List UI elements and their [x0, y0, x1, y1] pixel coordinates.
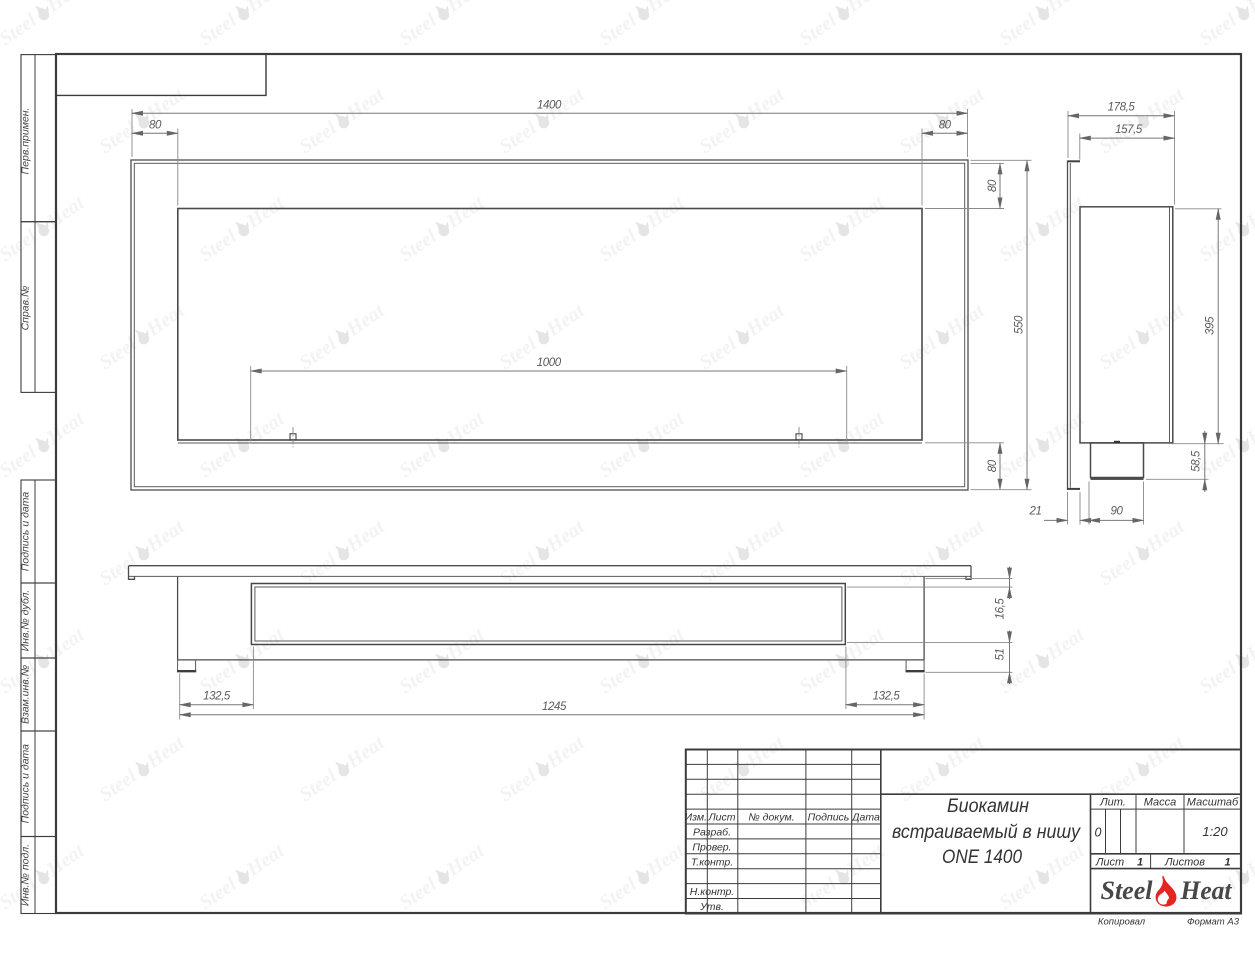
- svg-text:1: 1: [1137, 856, 1143, 868]
- svg-text:157,5: 157,5: [1115, 124, 1143, 136]
- svg-text:1:20: 1:20: [1202, 824, 1228, 839]
- svg-text:1245: 1245: [542, 701, 567, 713]
- svg-text:Heat: Heat: [1180, 876, 1233, 905]
- svg-text:Т.контр.: Т.контр.: [691, 856, 733, 868]
- svg-text:16,5: 16,5: [995, 598, 1007, 620]
- svg-text:Провер.: Провер.: [692, 841, 731, 853]
- svg-text:Инв.№ дубл.: Инв.№ дубл.: [20, 590, 32, 652]
- svg-text:80: 80: [939, 120, 952, 132]
- svg-text:21: 21: [1029, 506, 1042, 518]
- svg-text:Биокамин: Биокамин: [947, 796, 1030, 817]
- svg-text:178,5: 178,5: [1108, 102, 1136, 114]
- svg-text:Изм.: Изм.: [685, 812, 707, 824]
- svg-text:Копировал: Копировал: [1098, 917, 1146, 928]
- svg-text:0: 0: [1095, 826, 1102, 840]
- svg-text:80: 80: [987, 459, 999, 472]
- svg-text:Подпись и дата: Подпись и дата: [20, 744, 32, 824]
- svg-text:Инв.№ подл.: Инв.№ подл.: [20, 844, 32, 906]
- svg-text:1400: 1400: [537, 100, 562, 112]
- svg-text:ONE 1400: ONE 1400: [942, 847, 1022, 868]
- svg-text:51: 51: [995, 649, 1007, 661]
- svg-text:встраиваемый в нишу: встраиваемый в нишу: [892, 822, 1081, 843]
- svg-text:Утв.: Утв.: [699, 901, 724, 913]
- svg-text:№ докум.: № докум.: [748, 812, 794, 824]
- svg-text:Лит.: Лит.: [1099, 797, 1126, 809]
- svg-text:Подпись и дата: Подпись и дата: [20, 492, 32, 572]
- svg-text:Подпись: Подпись: [808, 812, 850, 824]
- svg-text:Лист: Лист: [707, 812, 735, 824]
- svg-text:132,5: 132,5: [873, 691, 901, 703]
- svg-text:Steel: Steel: [1101, 876, 1154, 905]
- svg-text:Лист: Лист: [1095, 856, 1124, 868]
- svg-text:Масштаб: Масштаб: [1187, 797, 1239, 809]
- svg-text:395: 395: [1205, 316, 1217, 335]
- svg-text:80: 80: [149, 120, 162, 132]
- svg-text:Формат А3: Формат А3: [1187, 917, 1240, 928]
- svg-text:Справ.№: Справ.№: [20, 286, 32, 331]
- svg-text:Н.контр.: Н.контр.: [690, 886, 734, 898]
- svg-text:1000: 1000: [537, 357, 562, 369]
- svg-text:Разраб.: Разраб.: [693, 827, 731, 839]
- svg-text:Перв.примен.: Перв.примен.: [20, 108, 32, 175]
- svg-text:80: 80: [987, 179, 999, 192]
- svg-text:Листов: Листов: [1164, 856, 1205, 868]
- svg-text:1: 1: [1224, 856, 1230, 868]
- svg-text:Взам.инв.№: Взам.инв.№: [20, 665, 32, 724]
- svg-text:58,5: 58,5: [1191, 450, 1203, 472]
- svg-text:132,5: 132,5: [203, 691, 231, 703]
- svg-text:Дата: Дата: [851, 812, 880, 824]
- svg-text:90: 90: [1111, 506, 1124, 518]
- svg-text:550: 550: [1013, 315, 1025, 334]
- svg-text:Масса: Масса: [1144, 797, 1177, 809]
